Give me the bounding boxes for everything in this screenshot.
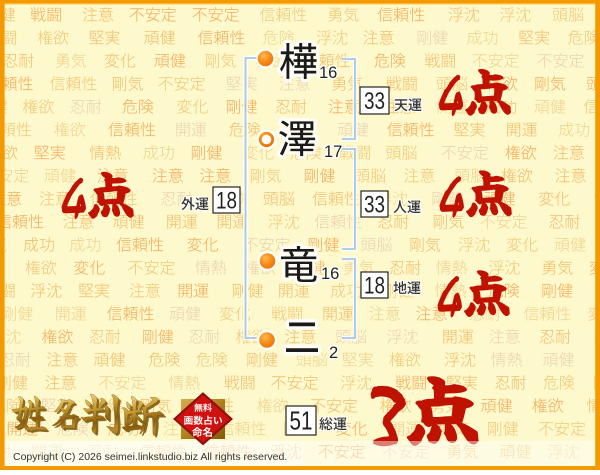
svg-text:16: 16: [321, 265, 339, 283]
svg-text:Copyright (C) 2026 seimei.link: Copyright (C) 2026 seimei.linkstudio.biz…: [13, 451, 287, 463]
svg-text:33: 33: [364, 88, 385, 115]
svg-text:33: 33: [364, 192, 385, 219]
svg-text:18: 18: [364, 273, 385, 300]
svg-text:16: 16: [319, 64, 337, 82]
svg-text:18: 18: [216, 188, 237, 215]
svg-text:51: 51: [290, 406, 313, 436]
svg-text:2: 2: [329, 344, 338, 362]
svg-text:17: 17: [324, 143, 342, 161]
